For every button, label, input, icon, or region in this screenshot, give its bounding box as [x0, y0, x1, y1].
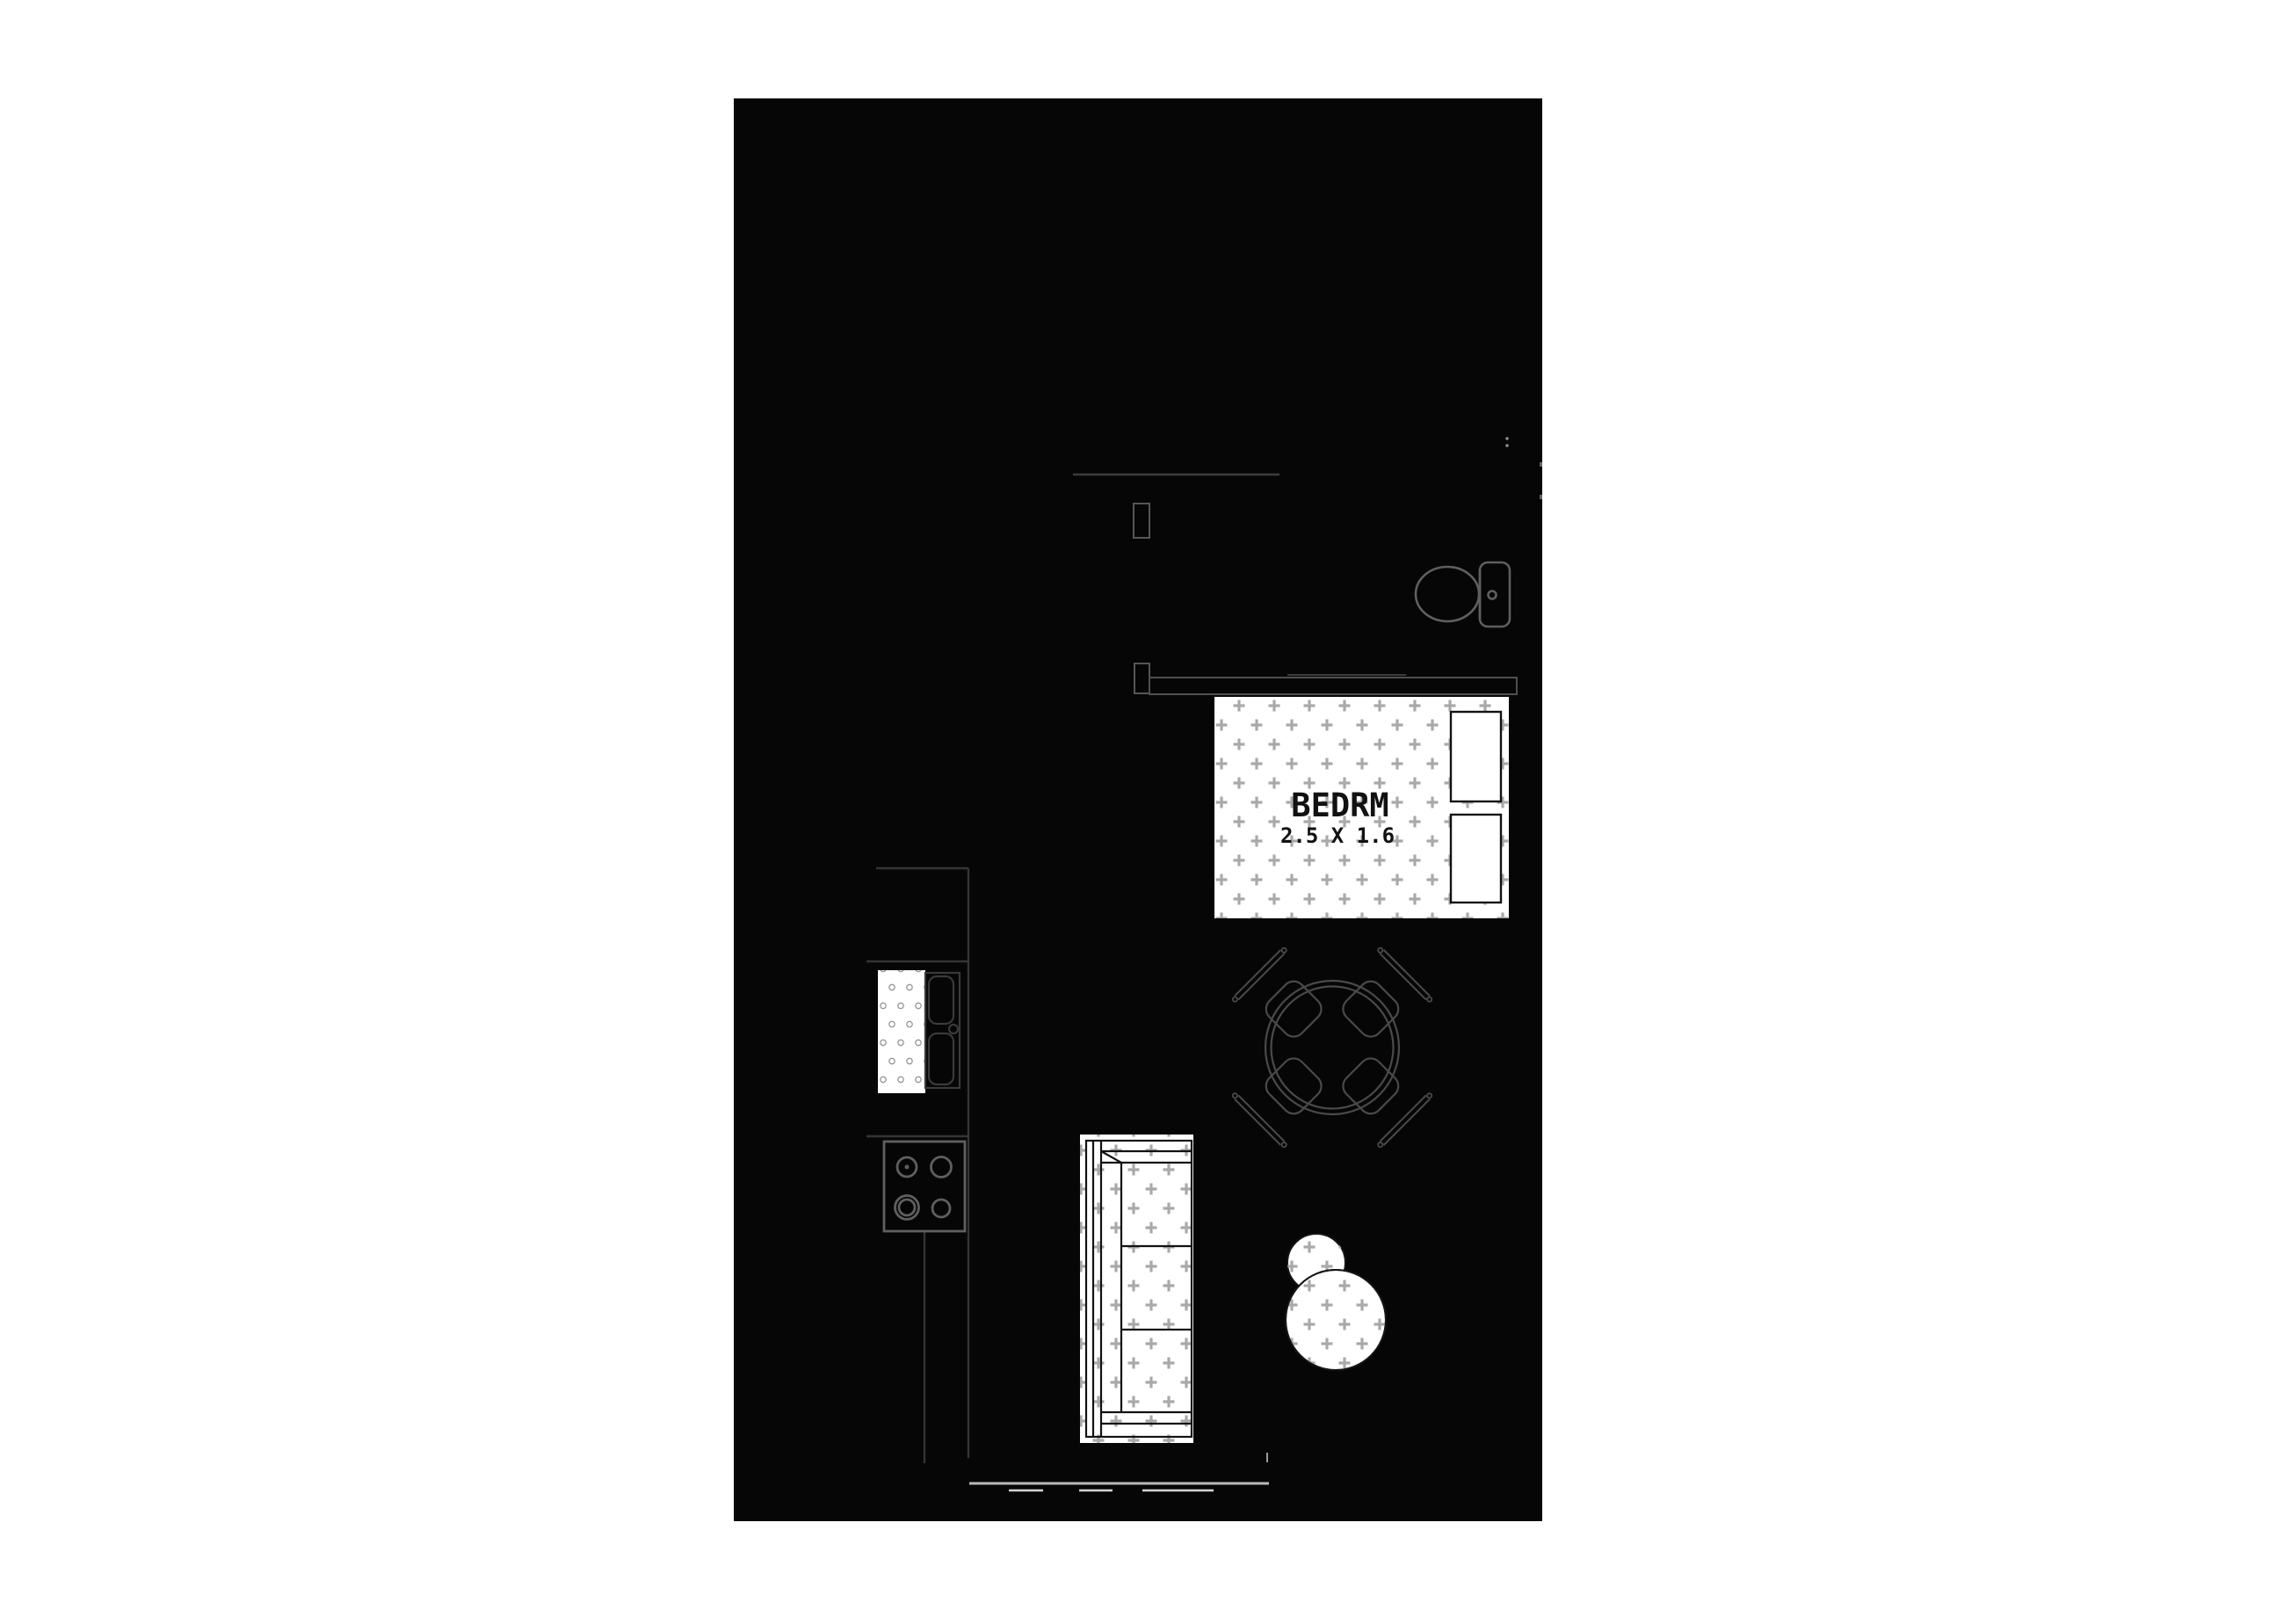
nightstand-bottom	[1451, 815, 1501, 903]
bedroom-label: BEDRM	[1291, 787, 1388, 824]
bedroom-wall-bar	[1149, 678, 1517, 694]
bedroom-dimensions: 2.5 X 1.6	[1280, 823, 1395, 848]
sink-drainboard	[878, 970, 925, 1093]
floor-plan-page: BEDRM 2.5 X 1.6	[0, 0, 2276, 1624]
sofa	[1080, 1135, 1193, 1443]
nightstand-top	[1451, 712, 1501, 801]
bedroom: BEDRM 2.5 X 1.6	[1214, 697, 1509, 918]
floor-plan-drawing: BEDRM 2.5 X 1.6	[0, 0, 2276, 1624]
